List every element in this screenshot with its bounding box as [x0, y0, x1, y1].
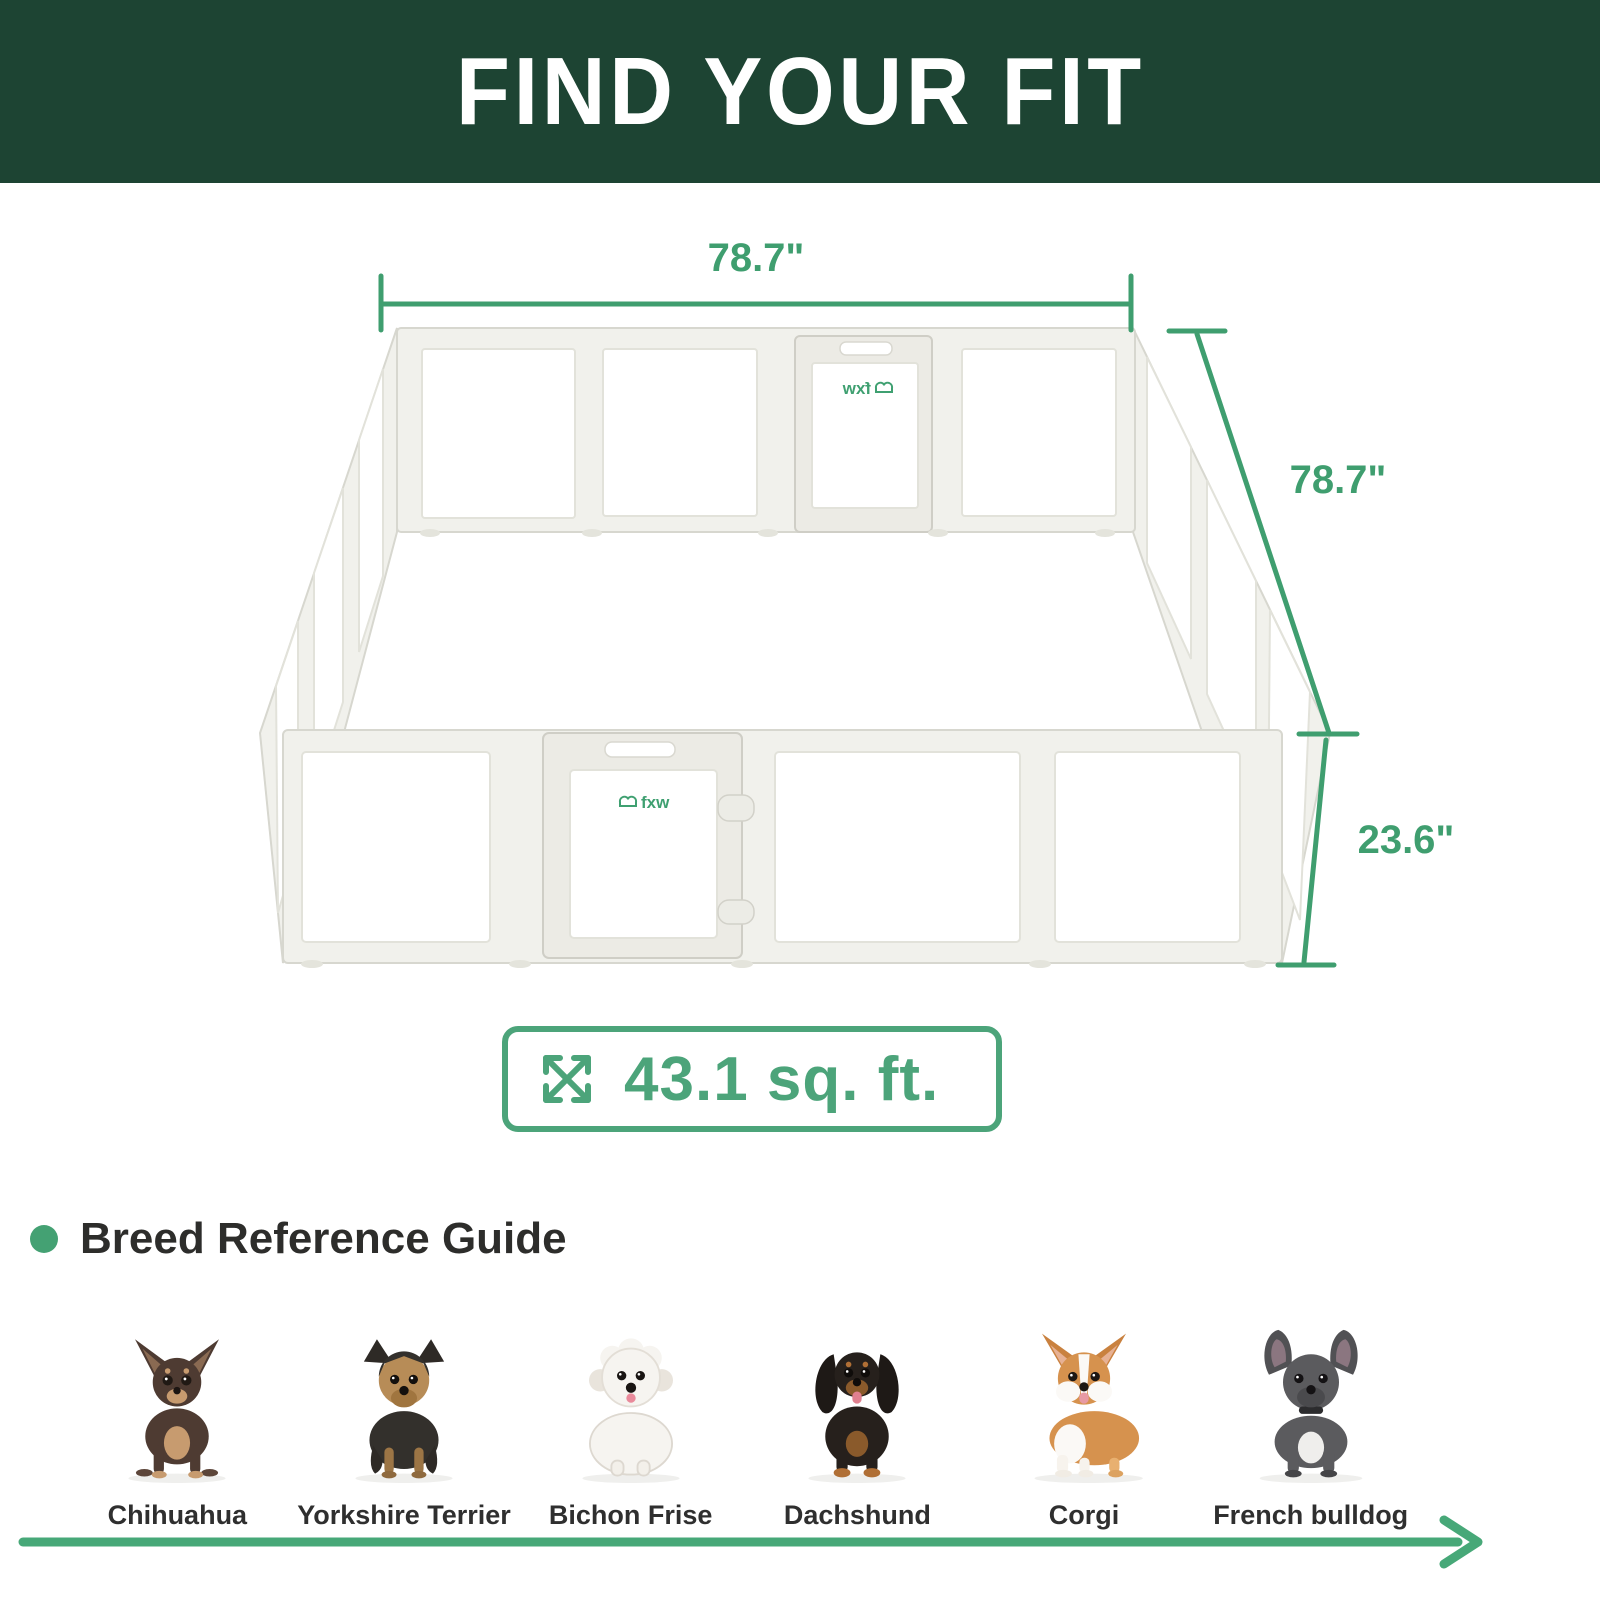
breed-list: Chihuahua: [64, 1296, 1424, 1531]
size-axis-arrow: [0, 1512, 1600, 1574]
page: FIND YOUR FIT: [0, 0, 1600, 1600]
area-value: 43.1 sq. ft.: [624, 1044, 939, 1115]
breed-item: French bulldog: [1197, 1296, 1424, 1531]
back-door: fxw: [795, 336, 932, 532]
breed-item: Dachshund: [744, 1296, 971, 1531]
svg-text:fxw: fxw: [641, 793, 670, 812]
back-door-handle: [840, 342, 892, 355]
front-door-handle: [605, 742, 675, 757]
front-door: fxw: [543, 733, 754, 958]
breed-guide-heading-row: Breed Reference Guide: [30, 1214, 567, 1264]
breed-item: Bichon Frise: [517, 1296, 744, 1531]
breed-guide-heading: Breed Reference Guide: [80, 1214, 567, 1264]
width-dimension-label: 78.7": [606, 236, 906, 281]
dachshund-image: [759, 1322, 955, 1490]
playpen-front-wall: fxw: [283, 730, 1282, 968]
playpen-illustration: fxw fxw: [0, 0, 1600, 1050]
breed-item: Chihuahua: [64, 1296, 291, 1531]
breed-item: Corgi: [971, 1296, 1198, 1531]
yorkshire-terrier-image: [306, 1322, 502, 1490]
depth-dimension-label: 78.7": [1258, 458, 1418, 503]
bullet-icon: [30, 1225, 58, 1253]
door-latch-top: [718, 795, 754, 821]
chihuahua-image: [79, 1322, 275, 1490]
corgi-image: [986, 1322, 1182, 1490]
bichon-frise-image: [533, 1322, 729, 1490]
area-badge: 43.1 sq. ft.: [502, 1026, 1002, 1132]
door-latch-bottom: [718, 900, 754, 924]
playpen-back-wall: fxw: [397, 328, 1135, 537]
french-bulldog-image: [1213, 1322, 1409, 1490]
height-dimension-label: 23.6": [1326, 818, 1486, 863]
svg-text:fxw: fxw: [842, 379, 871, 398]
expand-arrows-icon: [530, 1042, 604, 1116]
breed-item: Yorkshire Terrier: [291, 1296, 518, 1531]
